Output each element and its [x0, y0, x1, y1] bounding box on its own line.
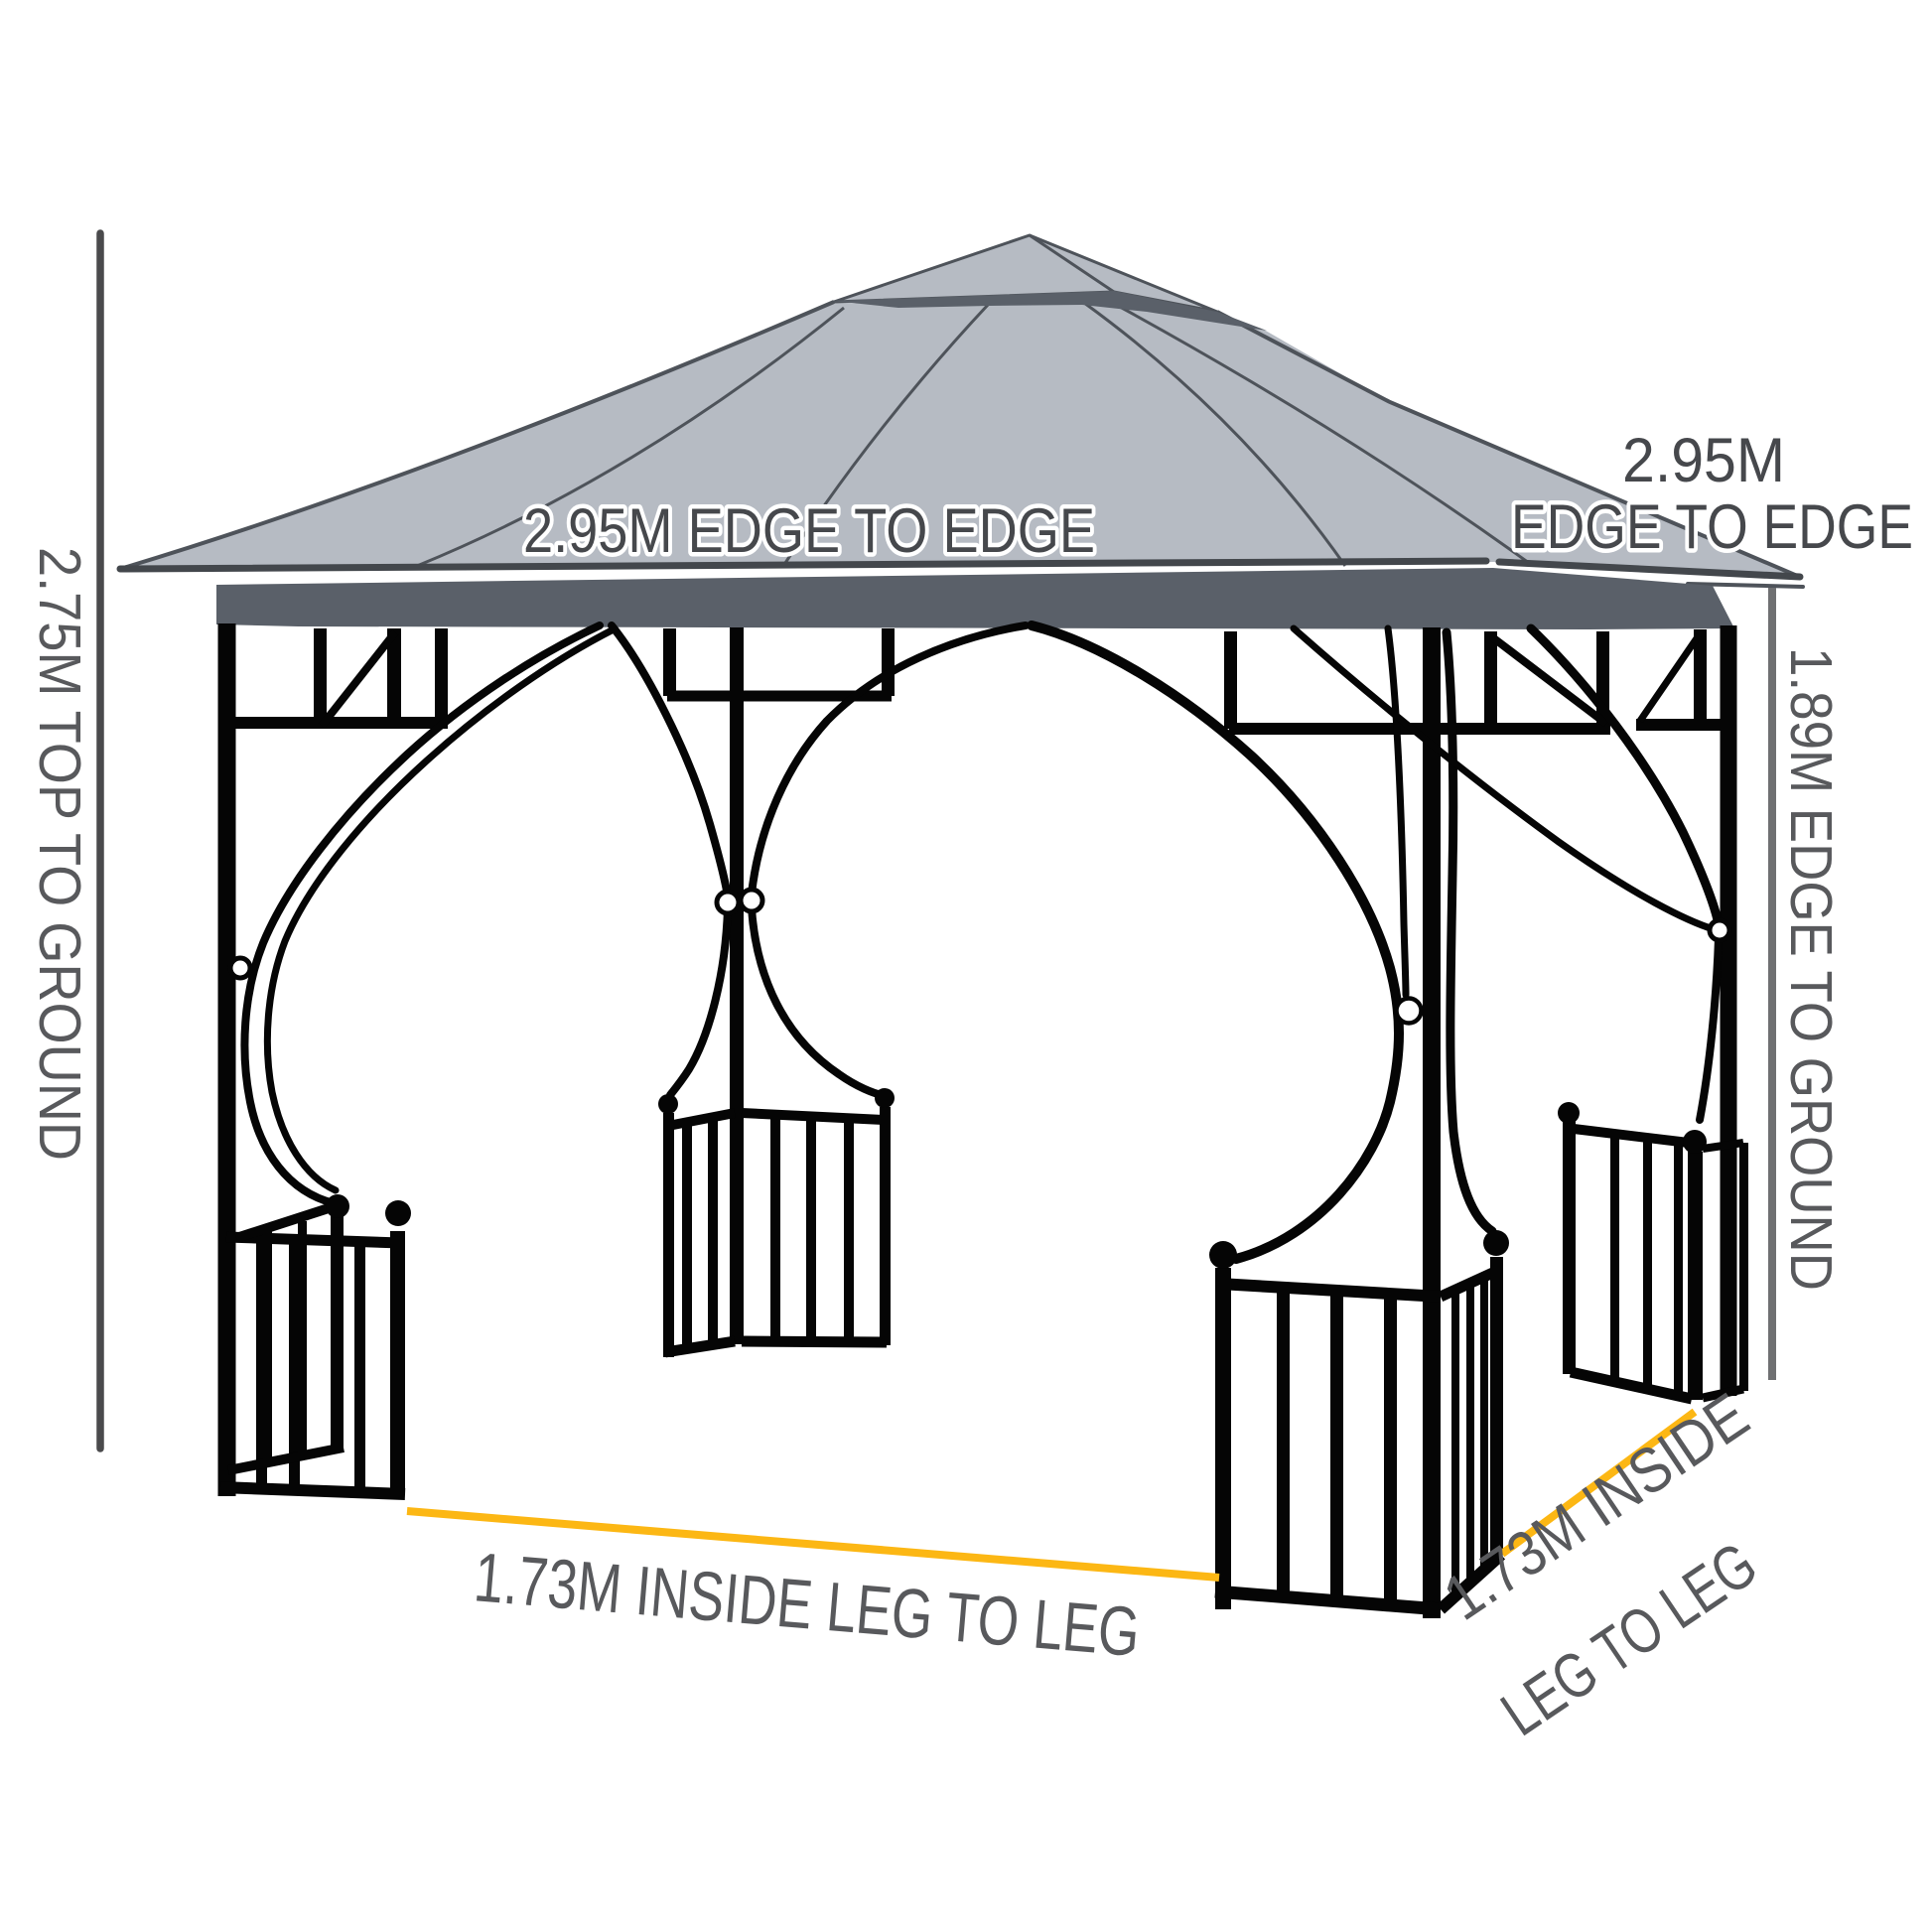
svg-text:EDGE TO EDGE: EDGE TO EDGE	[1511, 492, 1913, 562]
svg-text:1.89M EDGE TO GROUND: 1.89M EDGE TO GROUND	[1778, 647, 1844, 1291]
svg-text:2.95M: 2.95M	[1622, 426, 1785, 495]
svg-text:2.75M TOP TO GROUND: 2.75M TOP TO GROUND	[27, 547, 92, 1161]
svg-text:2.95M EDGE TO EDGE: 2.95M EDGE TO EDGE	[523, 496, 1095, 566]
